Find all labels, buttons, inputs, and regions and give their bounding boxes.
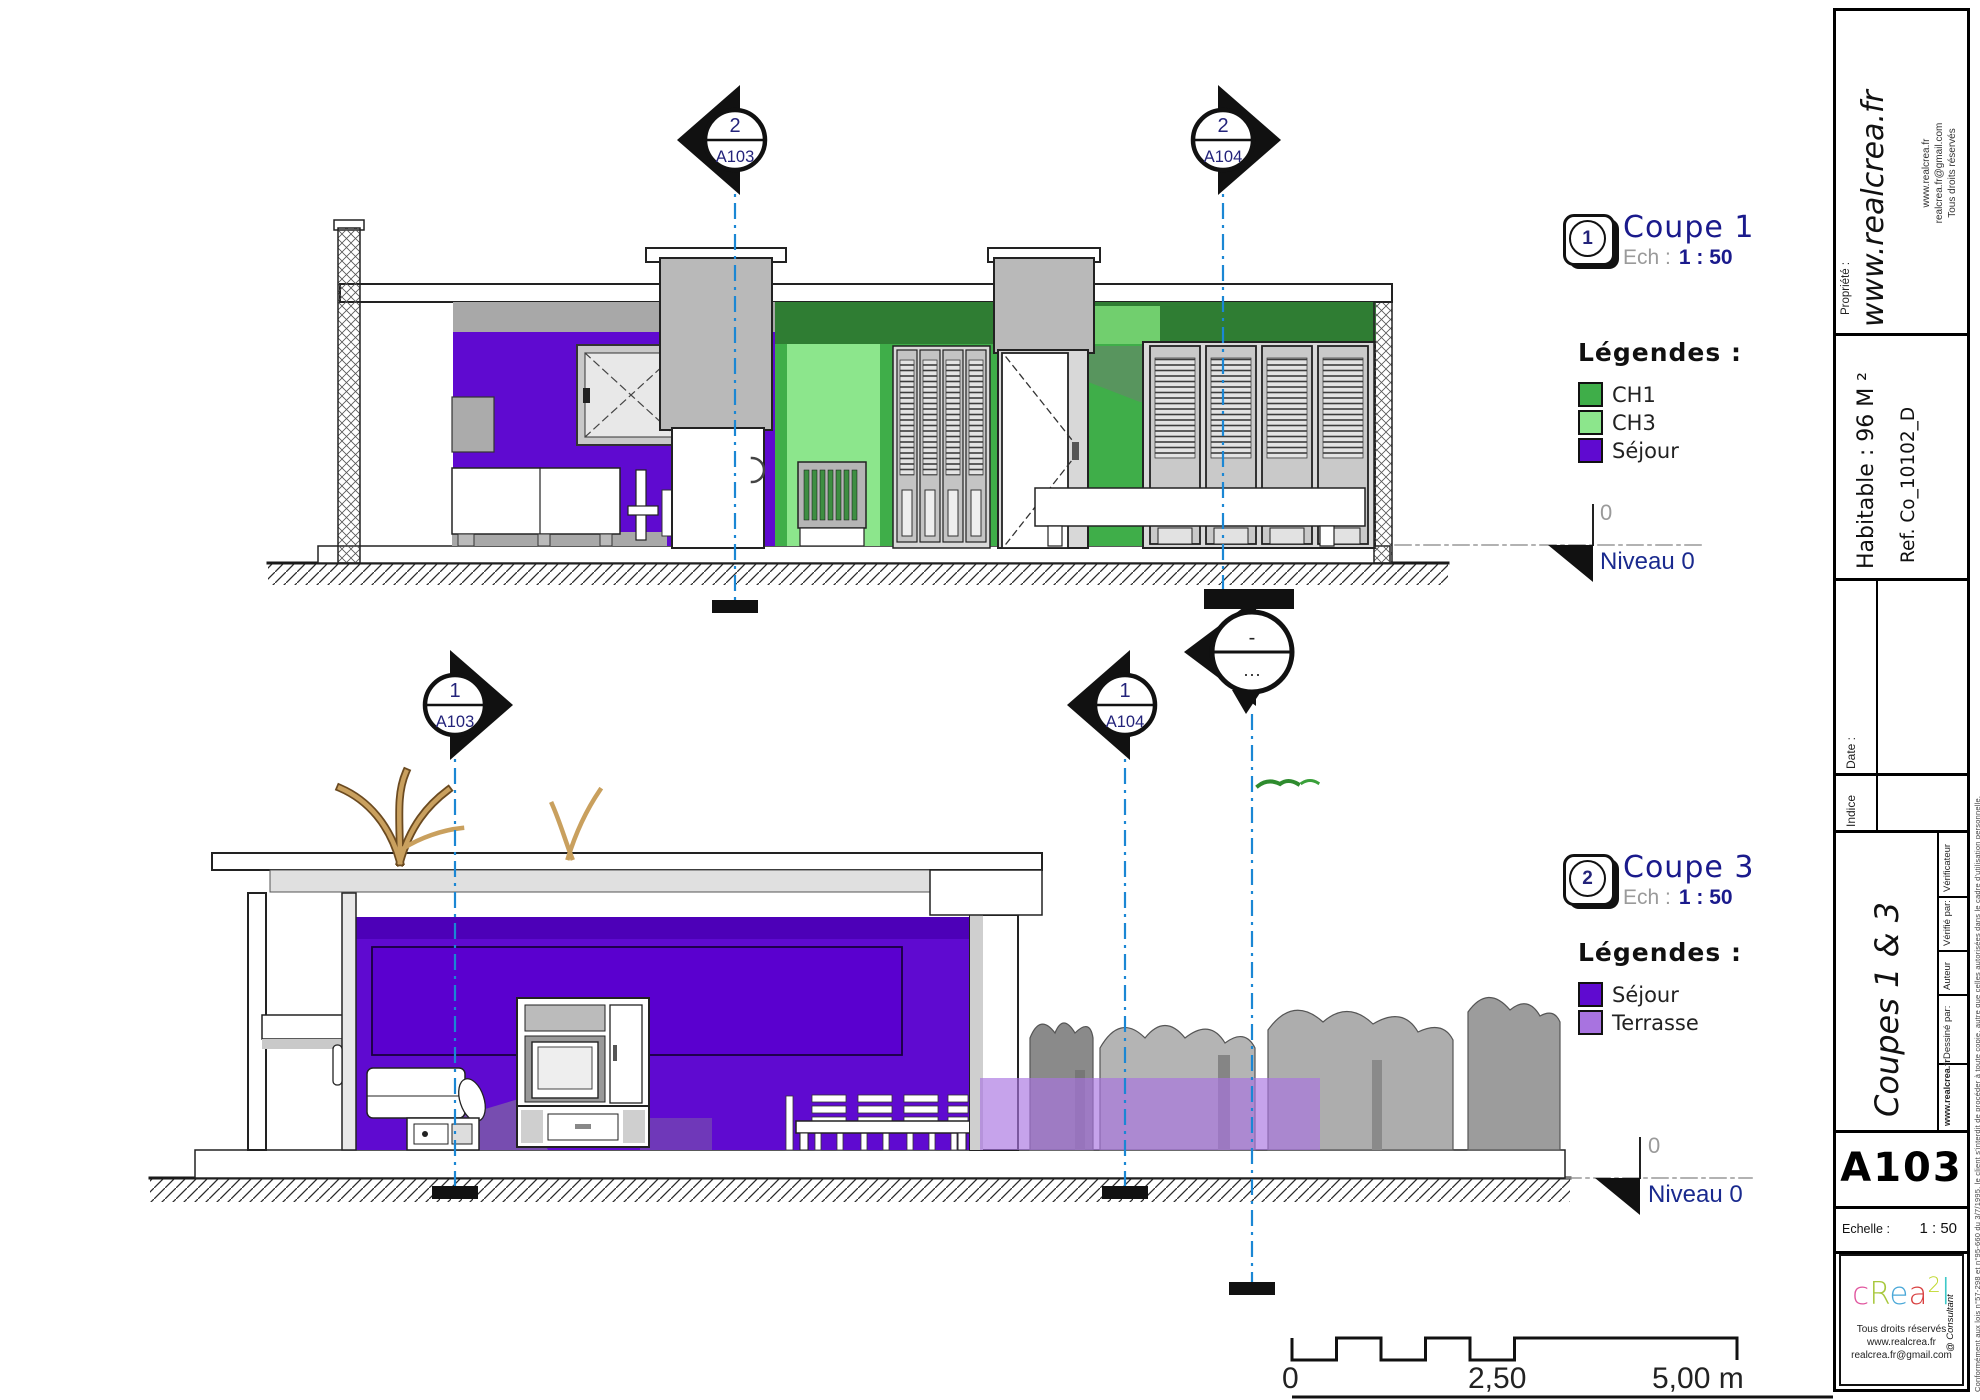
wardrobe [452,397,494,452]
legend-item-sejour: Séjour [1578,982,1679,1007]
ground-hatch [268,563,1448,585]
shutters-left [893,346,990,548]
logo-footer: Tous droits réservés www.realcrea.fr rea… [1841,1323,1962,1362]
door-handle [333,1045,342,1085]
reference: Ref. Co_10102_D [1898,335,1919,563]
owner-website: www.realcrea.fr [1856,32,1891,327]
bench [1035,488,1365,526]
side-table [407,1118,479,1150]
logo-letter: R [1869,1276,1889,1312]
owner-contact: www.realcrea.fr realcrea.fr@gmail.com To… [1920,43,1959,303]
scale-label: Ech : [1623,246,1671,269]
coupe3-drawing [150,772,1752,1215]
legend-swatch [1578,382,1603,407]
svg-text:A104: A104 [1204,148,1243,166]
legend-label: CH3 [1612,411,1656,435]
coupe1-drawing [268,220,1705,585]
scale-tick-0: 0 [1282,1362,1299,1396]
habitable-area: Habitable : 96 M ² [1854,331,1879,569]
tv-cabinet [517,998,649,1147]
verifie-par-label: Vérifié par: [1942,900,1953,946]
legend-item-ch3: CH3 [1578,410,1656,435]
svg-text:A103: A103 [436,713,475,731]
consultant-label: @ Consultant [1945,1294,1956,1352]
legend-label: CH1 [1612,383,1656,407]
view-scale: Ech :1 : 50 [1623,886,1733,910]
echelle-label: Echelle : [1842,1222,1890,1236]
dessine-par-label: Dessiné par: [1942,1006,1953,1059]
svg-text:-: - [1249,627,1256,649]
scale-label: Ech : [1623,886,1671,909]
legend-swatch [1578,438,1603,463]
legal-fine-print: Conformément aux lois n°57-298 et n°95-6… [1973,532,1980,1392]
level-label: Niveau 0 [1648,1181,1743,1209]
callout-number: 2 [1569,860,1606,897]
roof-tower [994,258,1094,353]
level-label: Niveau 0 [1600,548,1695,576]
level-mar­ker-coupe1 [1548,505,1593,582]
scale-value: 1 : 50 [1679,246,1733,269]
level-marker-coupe3 [1595,1138,1640,1215]
contact-line: realcrea.fr@gmail.com [1933,43,1946,303]
legend-heading: Légendes : [1578,938,1742,967]
svg-text:2: 2 [729,115,740,137]
legend-label: Terrasse [1612,1011,1699,1035]
crea-logo: cRea2l [1841,1272,1962,1313]
echelle-value: 1 : 50 [1919,1220,1957,1237]
logo-letter: c [1852,1276,1869,1312]
contact-line: Tous droits réservés [1946,43,1959,303]
terrace-overlay [980,1078,1320,1150]
legend-heading: Légendes : [1578,338,1742,367]
svg-text:2: 2 [1217,115,1228,137]
legend-swatch [1578,1010,1603,1035]
view-title: Coupe 1 [1623,210,1754,245]
logo-box: cRea2l @ Consultant Tous droits réservés… [1839,1254,1964,1386]
svg-text:A104: A104 [1106,713,1145,731]
scale-tick-end: 5,00 m [1652,1362,1744,1396]
auteur-label: Auteur [1942,962,1953,990]
svg-text:A103: A103 [716,148,755,166]
title-block: Propriété : www.realcrea.fr www.realcrea… [1833,8,1970,1392]
contact-line: www.realcrea.fr [1920,43,1933,303]
svg-text:1: 1 [449,680,460,702]
legend-label: Séjour [1612,439,1679,463]
statut-website: www.realcrea.fr [1942,1059,1952,1126]
view-title: Coupe 3 [1623,850,1754,885]
legend-label: Séjour [1612,983,1679,1007]
view-scale: Ech :1 : 50 [1623,246,1733,270]
door [672,428,764,548]
scale-bar [1292,1338,1833,1397]
date-label: Date : [1844,723,1858,769]
legend-item-terrasse: Terrasse [1578,1010,1699,1035]
callout-number: 1 [1569,220,1606,257]
section-marker-mid: - ··· [1184,589,1294,714]
ground-hatch [150,1178,1570,1202]
tree-branches [340,772,600,862]
legend-swatch [1578,410,1603,435]
svg-text:···: ··· [1243,664,1261,684]
footer-line: realcrea.fr@gmail.com [1841,1349,1962,1362]
drawing-sheet: 2 A103 2 A104 1 A103 1 A104 [0,0,1980,1400]
logo-letter: e [1889,1276,1908,1312]
callout-icon: 2 [1563,854,1615,906]
legend-item-ch1: CH1 [1578,382,1656,407]
section-marker-2-A103: 2 A103 [677,85,765,195]
level-value: 0 [1648,1133,1660,1159]
plant-sprig [1258,781,1298,786]
section-marker-1-A104: 1 A104 [1067,650,1155,760]
sheet-title: Coupes 1 & 3 [1868,837,1906,1117]
svg-text:1: 1 [1119,680,1130,702]
logo-superscript: 2 [1927,1273,1940,1297]
roof-tower [660,258,772,430]
bed [452,468,620,534]
legend-swatch [1578,982,1603,1007]
legend-item-sejour: Séjour [1578,438,1679,463]
sheet-number: A103 [1836,1130,1967,1206]
callout-icon: 1 [1563,214,1615,266]
logo-letter: a [1908,1276,1927,1312]
scale-tick-mid: 2,50 [1468,1362,1526,1396]
propriete-label: Propriété : [1840,240,1852,315]
echelle-row: Echelle : 1 : 50 [1836,1206,1967,1251]
level-value: 0 [1600,500,1612,526]
chair [636,470,646,540]
section-marker-1-A103: 1 A103 [425,650,513,760]
section-marker-2-A104: 2 A104 [1193,85,1281,195]
scale-value: 1 : 50 [1679,886,1733,909]
footer-line: www.realcrea.fr [1841,1336,1962,1349]
indice-label: Indice [1844,775,1858,827]
verificateur-label: Vérificateur [1942,844,1953,892]
footer-line: Tous droits réservés [1841,1323,1962,1336]
